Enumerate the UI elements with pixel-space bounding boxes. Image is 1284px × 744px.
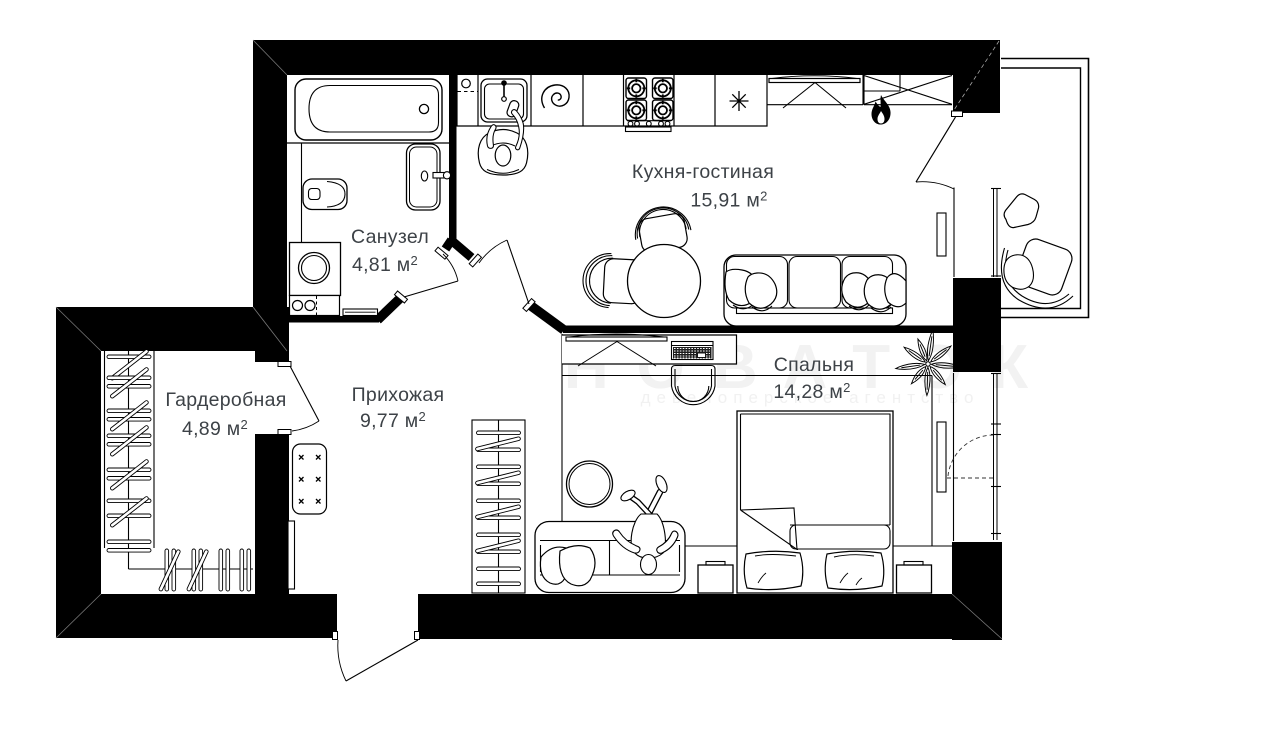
svg-text:14,28 м2: 14,28 м2	[773, 380, 850, 403]
svg-text:Прихожая: Прихожая	[352, 384, 445, 406]
svg-text:Гардеробная: Гардеробная	[165, 389, 286, 411]
svg-text:4,89 м2: 4,89 м2	[182, 417, 248, 440]
svg-text:Спальня: Спальня	[774, 354, 854, 376]
svg-text:4,81 м2: 4,81 м2	[352, 253, 418, 276]
svg-text:9,77 м2: 9,77 м2	[360, 409, 426, 432]
svg-text:Санузел: Санузел	[351, 226, 429, 248]
svg-text:Кухня-гостиная: Кухня-гостиная	[632, 161, 774, 183]
svg-text:15,91 м2: 15,91 м2	[690, 189, 767, 212]
